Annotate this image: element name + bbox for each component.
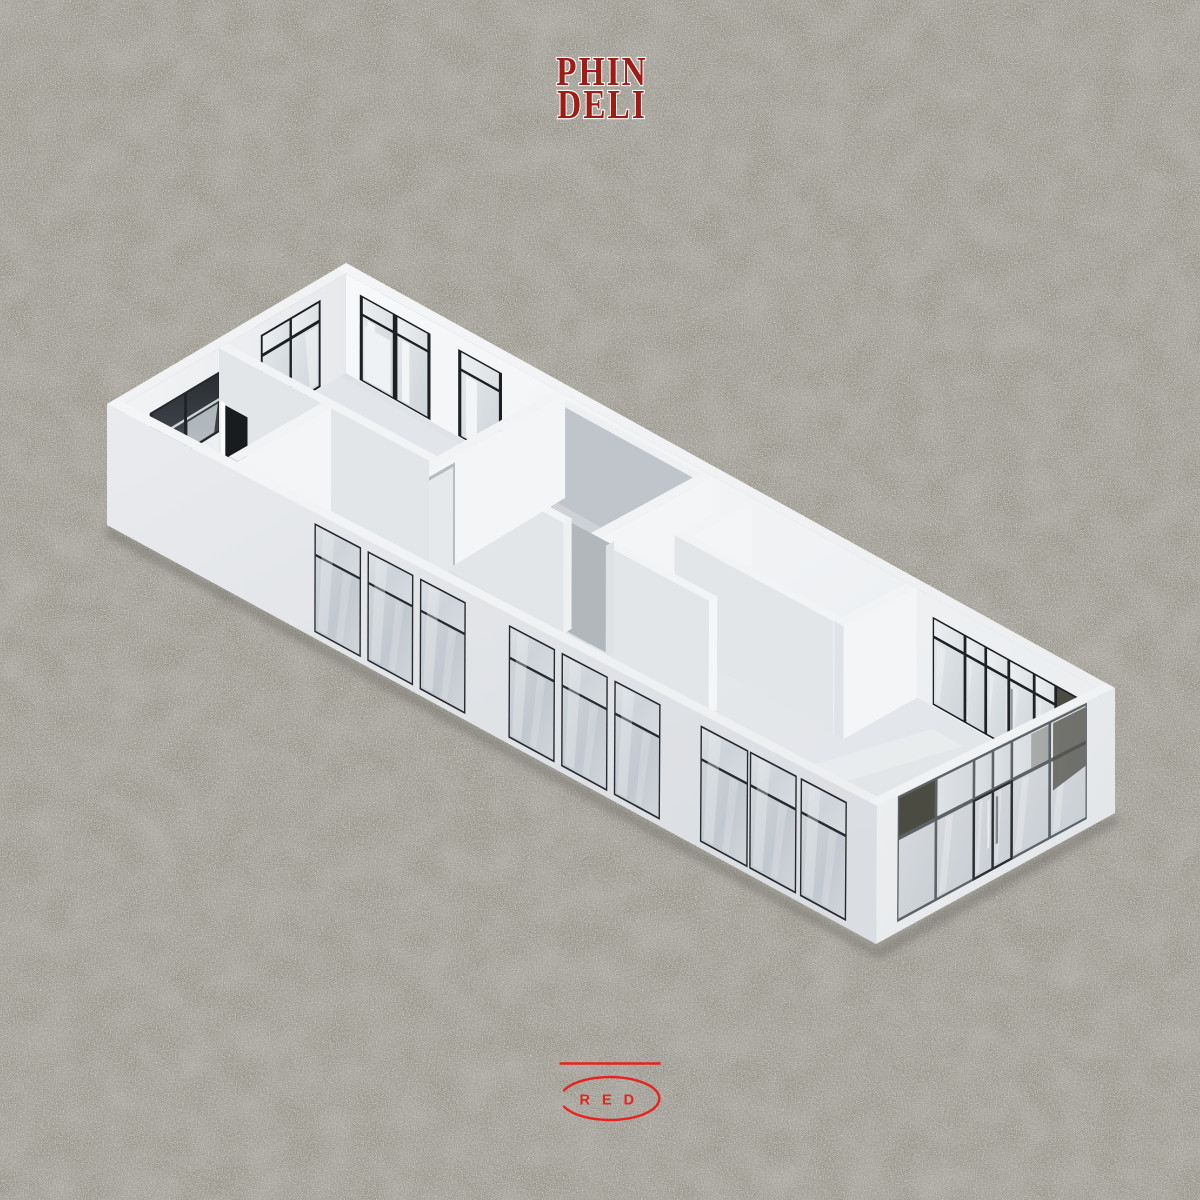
svg-text:RED: RED [580,1093,647,1109]
svg-text:DELI: DELI [557,83,647,128]
